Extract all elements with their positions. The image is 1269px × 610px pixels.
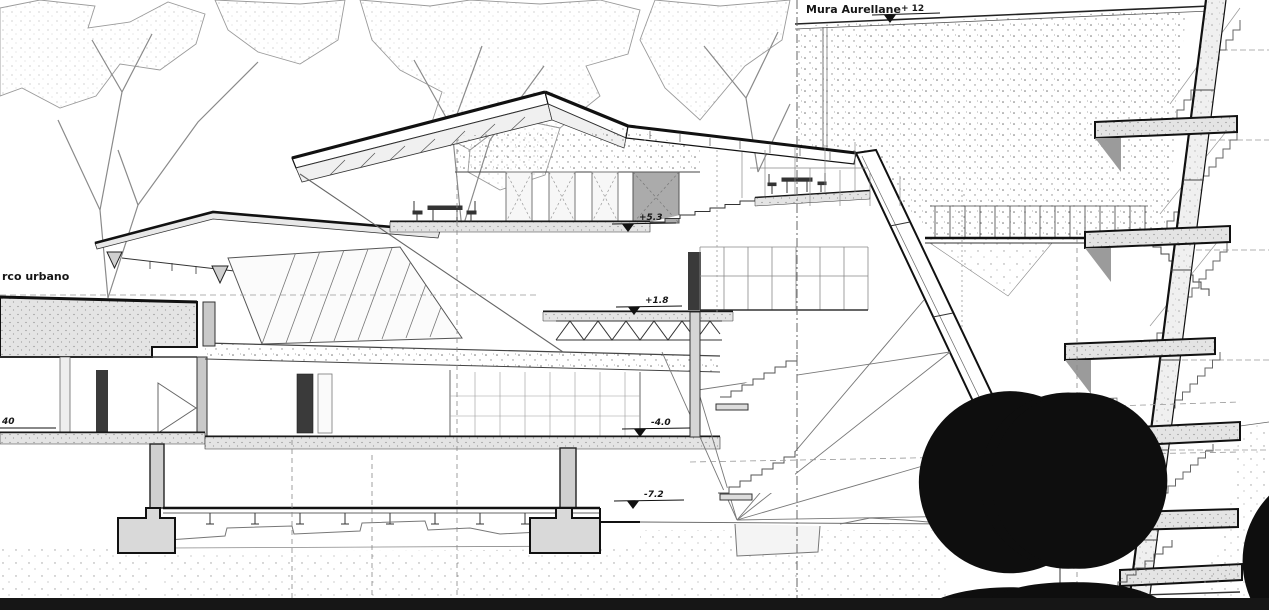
floor-slab xyxy=(390,222,650,232)
tree-canopy xyxy=(0,0,205,108)
cafe-table-left xyxy=(413,201,476,222)
floor-slab xyxy=(0,433,205,444)
park-label: rco urbano xyxy=(2,270,70,283)
elevation-value: -7.2 xyxy=(644,490,664,500)
dark-door-edge xyxy=(688,252,701,310)
bench xyxy=(716,404,748,410)
elevation-value: -4.0 xyxy=(651,418,671,428)
pier xyxy=(203,302,215,346)
sloped-glazing xyxy=(228,247,462,344)
terrace-underside xyxy=(930,243,1052,296)
foundation-footing xyxy=(118,508,175,553)
door-frame xyxy=(506,172,618,222)
wall-label: Mura Aurellane xyxy=(806,3,901,16)
section-canvas: Mura Aurellane rco urbano + 12 +5.3 +1.8… xyxy=(0,0,1269,610)
ground-stipple-mid xyxy=(163,549,640,600)
canopy-top-edge xyxy=(95,212,440,243)
elevation-marker-lower: -4.0 xyxy=(622,418,690,437)
elevation-marker-icon xyxy=(627,501,639,509)
zone-wall xyxy=(690,312,700,437)
section-base-band xyxy=(0,598,1269,610)
canopy-hangers xyxy=(150,261,196,274)
foundation-footing xyxy=(530,508,600,553)
excavation-trench xyxy=(735,524,820,556)
berm-stipple-band xyxy=(205,343,720,372)
storefront-glazing xyxy=(450,370,640,437)
basement-wall xyxy=(150,444,164,508)
elevation-value: + 12 xyxy=(901,4,924,14)
bench xyxy=(720,494,752,500)
basement-wall xyxy=(560,448,576,508)
terrace-floor-18 xyxy=(543,247,868,340)
door-dark-panel xyxy=(96,370,108,433)
floor-slab xyxy=(205,437,720,449)
architectural-section-drawing: Mura Aurellane rco urbano + 12 +5.3 +1.8… xyxy=(0,0,1269,610)
tree-canopy xyxy=(215,0,345,64)
level-minus4-right xyxy=(205,359,720,449)
curtain-wall-glazing xyxy=(700,247,868,310)
canopy-gutter-triangle xyxy=(212,266,228,283)
door-dark-panel xyxy=(297,374,313,433)
elevation-marker-icon xyxy=(884,15,896,23)
elevation-value: +1.8 xyxy=(645,296,668,306)
door-frame xyxy=(318,374,332,433)
park-slab xyxy=(0,297,197,357)
wall-brace-triangle xyxy=(158,383,196,433)
excavation-ground xyxy=(640,522,950,524)
floor-edge-step xyxy=(600,508,640,522)
elevation-marker-basement: -7.2 xyxy=(614,490,684,509)
level-minus4-left xyxy=(0,357,207,444)
elevation-value: +5.3 xyxy=(639,213,662,223)
elevation-value: 40 xyxy=(1,417,15,427)
door-frame xyxy=(60,357,70,433)
elevation-marker-lower-left: 40 xyxy=(0,417,56,428)
floor-slab xyxy=(543,312,733,321)
interior-wall xyxy=(197,357,207,437)
